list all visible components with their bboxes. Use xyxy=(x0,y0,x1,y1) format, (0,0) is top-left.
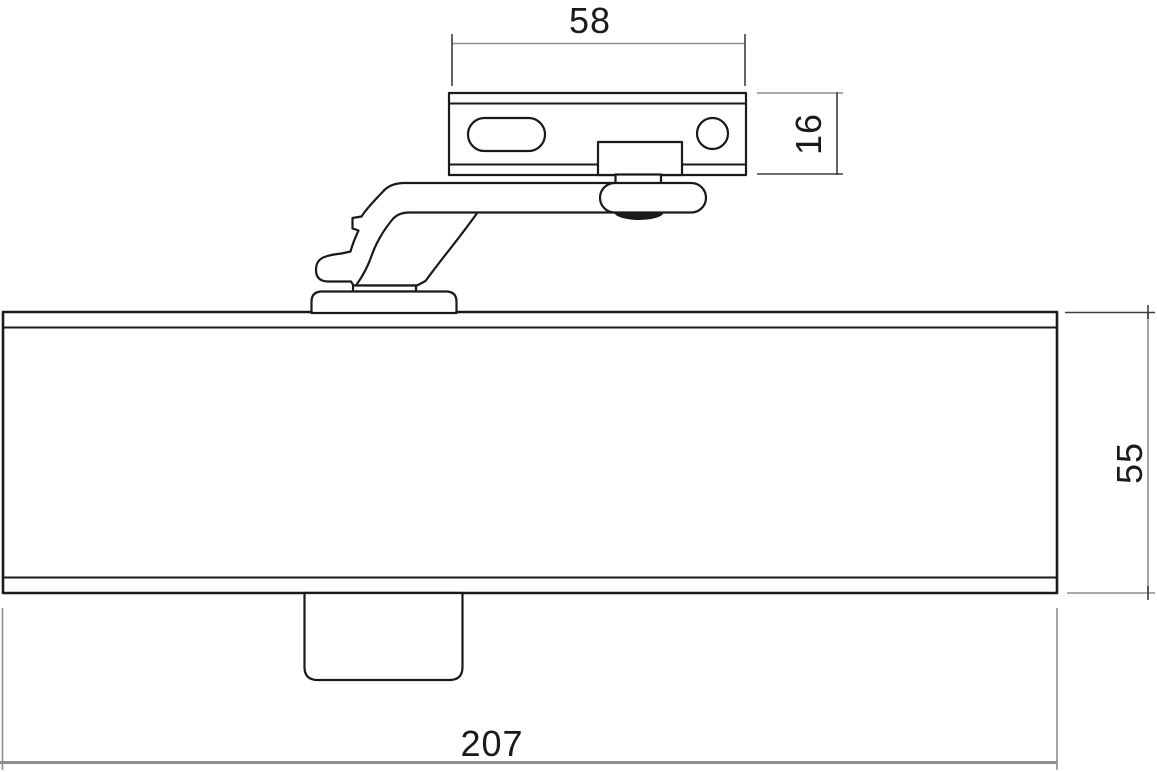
technical-drawing-page: 58 16 55 207 xyxy=(0,0,1157,772)
drawing-outlines xyxy=(3,93,1057,680)
dim-label-body-length: 207 xyxy=(460,723,523,764)
closer-body xyxy=(3,312,1057,593)
door-closer-drawing: 58 16 55 207 xyxy=(0,0,1157,772)
closer-arm xyxy=(316,183,622,286)
dim-label-body-height: 55 xyxy=(1109,442,1150,484)
dim-label-bracket-width: 58 xyxy=(569,0,611,41)
valve-box xyxy=(305,593,463,680)
arm-end-pill xyxy=(600,183,706,213)
bracket-hole xyxy=(697,118,728,149)
dim-label-bracket-height: 16 xyxy=(788,113,829,155)
bracket-tab xyxy=(598,142,682,175)
pivot-block xyxy=(312,292,457,314)
bracket-slot xyxy=(468,118,545,151)
